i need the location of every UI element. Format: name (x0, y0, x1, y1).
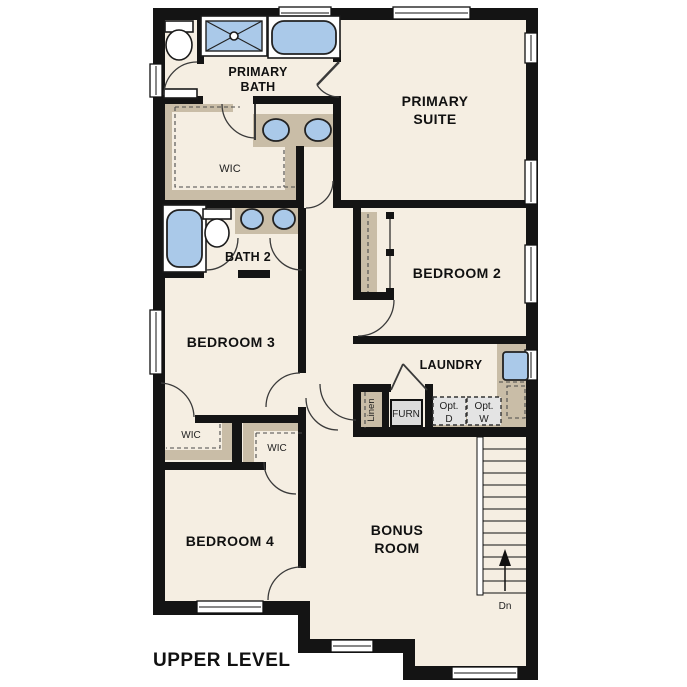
bath2-label: BATH 2 (225, 250, 271, 264)
bedroom3-label: BEDROOM 3 (187, 334, 275, 350)
linen-label: Linen (366, 398, 377, 421)
opt-washer-label: Opt. (475, 401, 494, 412)
bedroom2-closet-shelf (361, 212, 377, 294)
primary-tub (272, 21, 336, 54)
bedroom2-label: BEDROOM 2 (413, 265, 501, 281)
laundry-sink (503, 352, 528, 380)
bedroom4-label: BEDROOM 4 (186, 533, 274, 549)
wic-bedroom3-label: WIC (181, 430, 200, 441)
bonus-room-label: BONUS (371, 522, 424, 538)
primary-bath-label: PRIMARY (228, 65, 288, 79)
bath2-tub (167, 210, 202, 267)
stairs-dn-label: Dn (499, 601, 512, 612)
opt-dryer-label: Opt. (440, 401, 459, 412)
shower-drain (230, 32, 238, 40)
bonus-room-label2: ROOM (374, 540, 419, 556)
toilet-bowl (166, 30, 192, 60)
opt-dryer-label2: D (445, 414, 452, 425)
plan-title: UPPER LEVEL (153, 650, 290, 671)
wic-primary-label: WIC (219, 163, 240, 175)
wic-bedroom4-label: WIC (267, 443, 286, 454)
sink (305, 119, 331, 141)
toilet-bowl (205, 219, 229, 247)
primary-bath-label2: BATH (241, 80, 276, 94)
sink (263, 119, 289, 141)
floor-plan-page: PRIMARY BATH PRIMARY SUITE WIC BATH 2 BE… (0, 0, 687, 687)
shelf (164, 89, 197, 98)
primary-suite-label: PRIMARY (402, 93, 469, 109)
toilet-tank (203, 209, 231, 219)
furnace-label: FURN (392, 409, 420, 420)
opt-washer-label2: W (479, 414, 489, 425)
sink (241, 209, 263, 229)
sink (273, 209, 295, 229)
primary-suite-label2: SUITE (413, 111, 456, 127)
floor-plan-drawing: PRIMARY BATH PRIMARY SUITE WIC BATH 2 BE… (0, 0, 687, 687)
laundry-label: LAUNDRY (420, 358, 483, 372)
